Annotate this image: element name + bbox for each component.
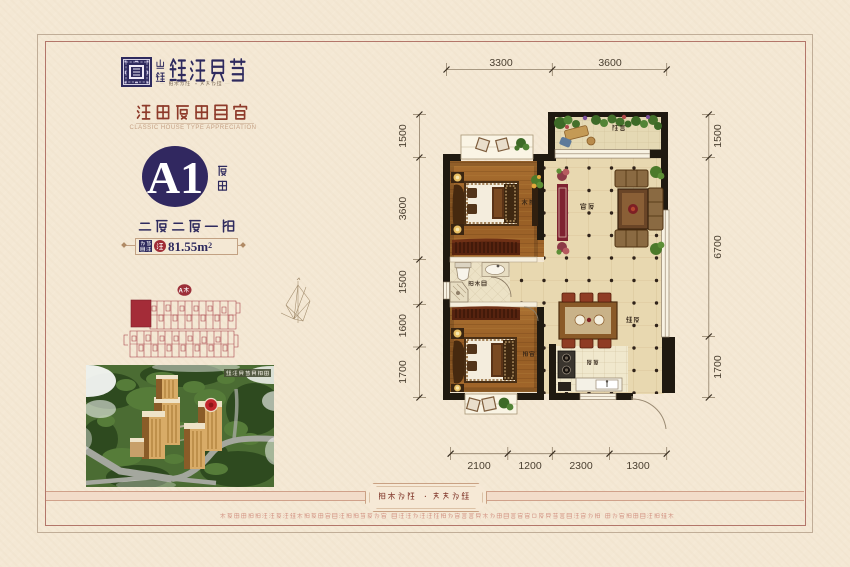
svg-text:A: A bbox=[179, 289, 184, 295]
